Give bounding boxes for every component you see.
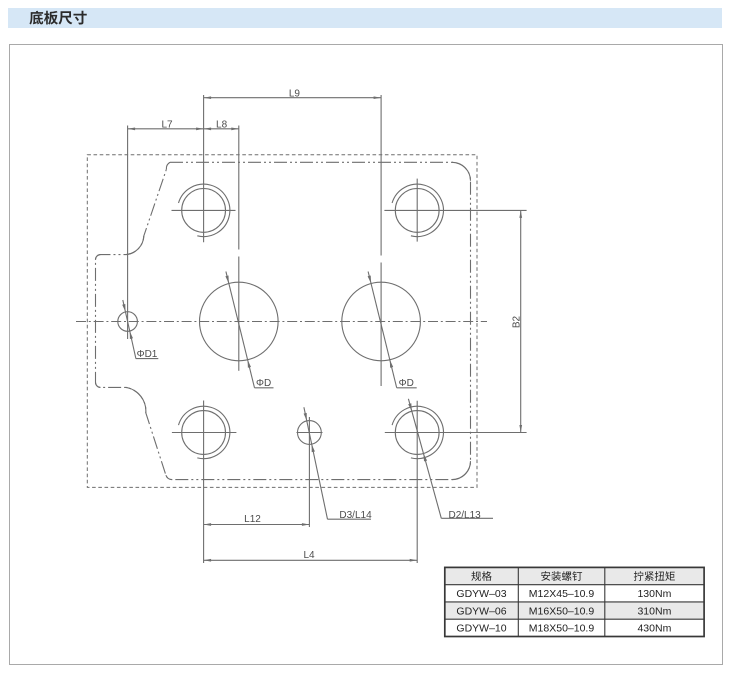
svg-text:M18X50–10.9: M18X50–10.9 <box>529 623 595 635</box>
svg-text:310Nm: 310Nm <box>637 605 671 617</box>
svg-text:GDYW–03: GDYW–03 <box>456 588 506 600</box>
svg-text:L8: L8 <box>216 119 228 130</box>
svg-text:L9: L9 <box>289 89 301 100</box>
svg-text:B2: B2 <box>511 315 522 328</box>
svg-text:GDYW–06: GDYW–06 <box>456 605 506 617</box>
svg-text:430Nm: 430Nm <box>637 623 671 635</box>
svg-text:ΦD: ΦD <box>399 378 414 389</box>
svg-text:M16X50–10.9: M16X50–10.9 <box>529 605 595 617</box>
svg-text:ΦD: ΦD <box>256 378 271 389</box>
svg-text:ΦD1: ΦD1 <box>137 349 158 360</box>
svg-text:D3/L14: D3/L14 <box>339 510 372 521</box>
svg-text:130Nm: 130Nm <box>637 588 671 600</box>
svg-text:GDYW–10: GDYW–10 <box>456 623 506 635</box>
svg-text:L7: L7 <box>161 119 173 130</box>
svg-text:D2/L13: D2/L13 <box>449 510 482 521</box>
svg-text:L12: L12 <box>244 514 261 525</box>
svg-text:M12X45–10.9: M12X45–10.9 <box>529 588 595 600</box>
svg-text:L4: L4 <box>303 550 315 561</box>
